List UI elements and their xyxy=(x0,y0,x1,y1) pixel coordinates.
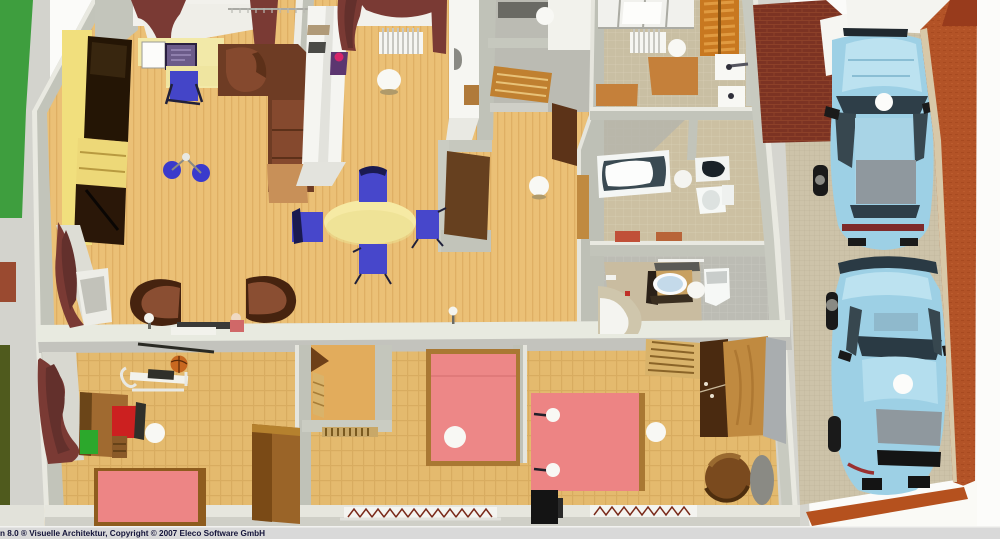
svg-text:n 8.0 ® Visuelle Architektur,: n 8.0 ® Visuelle Architektur, Copyright … xyxy=(0,529,265,538)
